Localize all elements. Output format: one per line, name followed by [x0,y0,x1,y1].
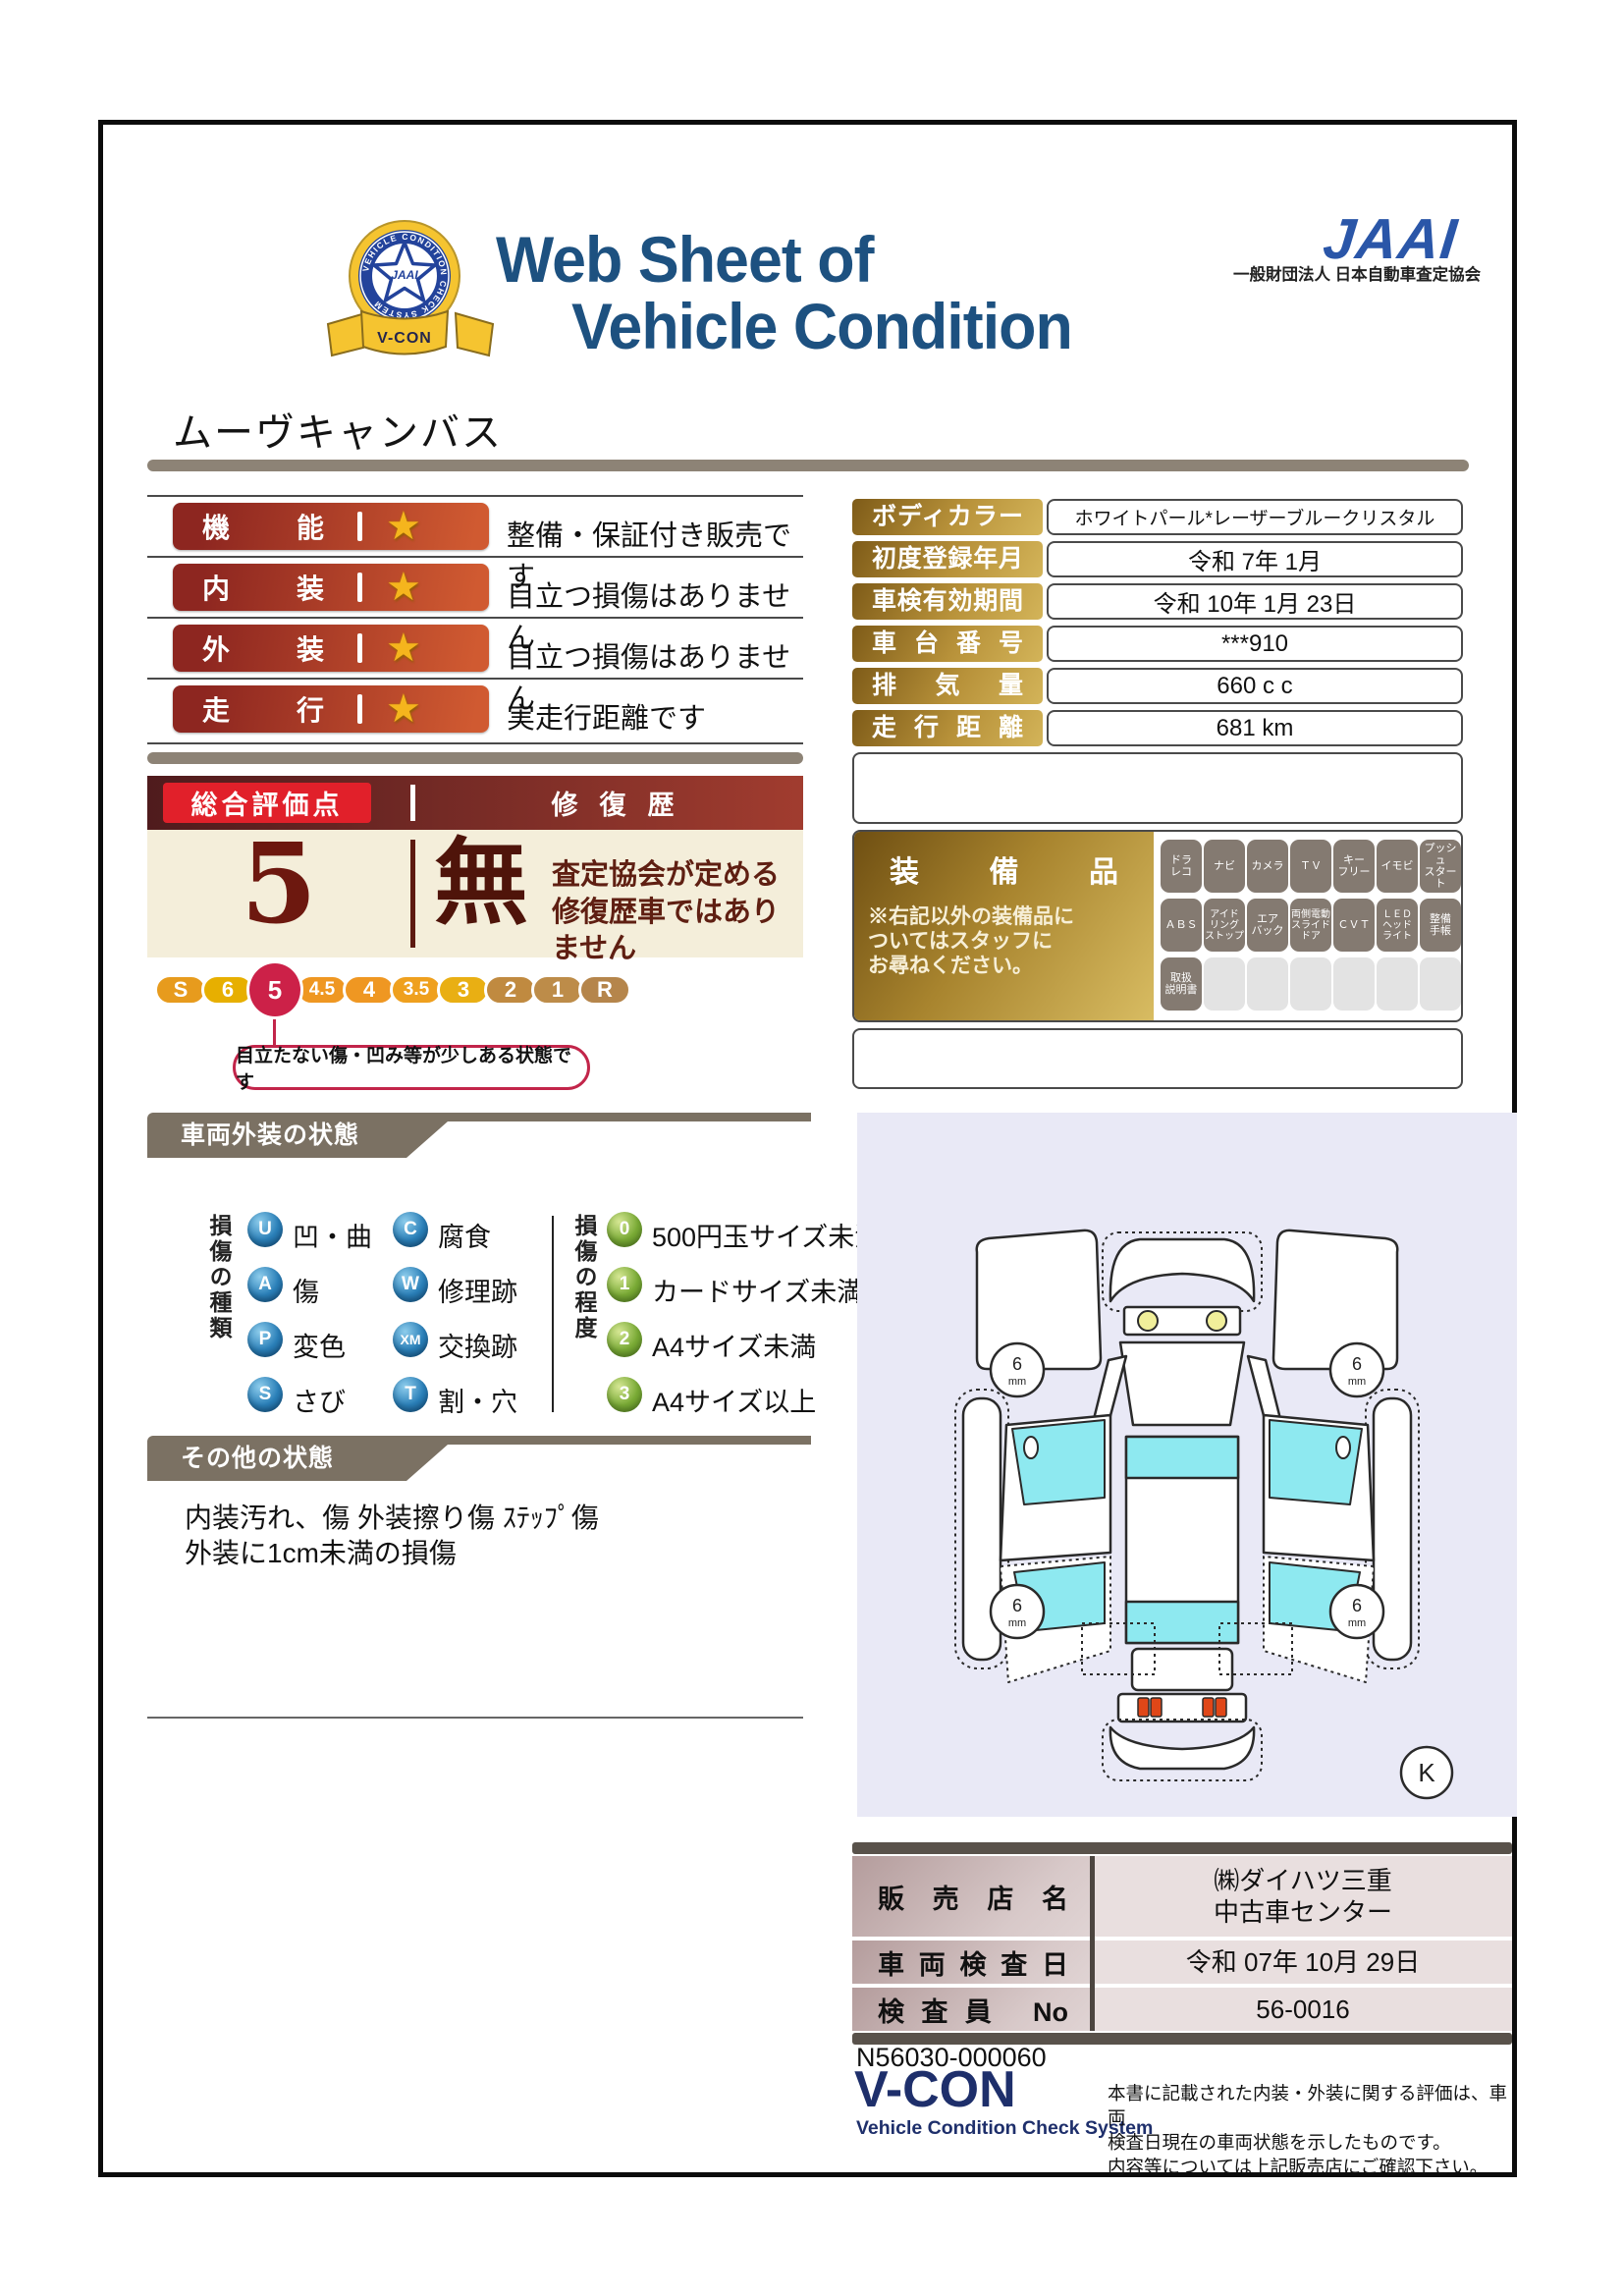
damage-type-header: 損傷の種類 [202,1214,236,1341]
damage-type-label: 腐食 [438,1216,491,1254]
equipment-badge: プッシュ スタート [1420,840,1461,893]
section-title-exterior: 車両外装の状態 [181,1113,359,1158]
rating-label: 内装 [173,568,340,607]
dealer-table-divider [1090,1856,1095,2031]
damage-degree-icon-0: 0 [607,1212,642,1247]
divider-bar-top [147,460,1469,471]
equipment-badge: ＡＢＳ [1161,899,1202,952]
damage-degree-label: 500円玉サイズ未満 [652,1216,881,1254]
equipment-badge: キー フリー [1333,840,1375,893]
other-condition-text: 内装汚れ、傷 外装擦り傷 ｽﾃｯﾌﾟ傷 外装に1cm未満の損傷 [185,1501,599,1572]
dealer-value-inspector-no: 56-0016 [1094,1988,1512,2031]
damage-degree-label: カードサイズ未満 [652,1271,863,1309]
equipment-badge: アイド リング ストップ [1204,899,1245,952]
equipment-badge: 両側電動 スライド ドア [1290,899,1331,952]
info-value-mileage: 681 km [1047,710,1463,746]
grade-scale-1: 1 [531,974,584,1006]
repair-history-title: 修復歴 [422,776,803,830]
dealer-label-text: 検査員 No [878,1991,1068,2029]
equipment-section: 装備品 ※右記以外の装備品に ついてはスタッフに お尋ねください。 ドラ レコ … [852,830,1463,1022]
grade-scale-R: R [578,974,631,1006]
damage-type-icon-XM: XM [393,1322,428,1357]
vcon-logo: V-CON [854,2060,1016,2119]
rating-desc: 実走行距離です [507,695,811,737]
damage-type-label: 傷 [293,1271,319,1309]
equipment-badge: イモビ [1377,840,1418,893]
divider-bar-left [147,752,803,764]
grade-scale-3: 3 [437,974,490,1006]
damage-type-icon-U: U [247,1212,283,1247]
car-diagram-panel: 6 mm 6 mm 6 mm 6 mm K [857,1113,1517,1817]
damage-degree-icon-1: 1 [607,1267,642,1302]
equipment-badge-empty [1290,957,1331,1011]
grade-scale-5-selected: 5 [246,960,303,1019]
rating-divider [357,512,362,541]
other-condition-line2: 外装に1cm未満の損傷 [185,1536,599,1571]
dealer-label-text: 販売店名 [878,1878,1068,1916]
tread-front-right-unit: mm [1348,1376,1366,1388]
emblem-star-label: JAAI [391,268,418,282]
info-value-chassis-no: ***910 [1047,626,1463,662]
vcon-emblem-icon: VEHICLE CONDITION CHECK SYSTEM JAAI V-CO… [322,216,499,371]
equipment-badge: 整備 手帳 [1420,899,1461,952]
other-condition-line1: 内装汚れ、傷 外装擦り傷 ｽﾃｯﾌﾟ傷 [185,1501,599,1536]
info-value-body-color: ホワイトパール*レーザーブルークリスタル [1047,499,1463,535]
overall-score-body: 5 無 査定協会が定める 修復歴車ではありません [147,830,803,957]
section-title-other: その他の状態 [181,1436,334,1481]
equipment-badge: ＬＥＤ ヘッド ライト [1377,899,1418,952]
footer-note-line2: 検査日現在の車両状態を示したものです。 [1108,2131,1516,2156]
equipment-badge-empty [1247,957,1288,1011]
dealer-table-top-bar [852,1842,1512,1854]
info-label-mileage: 走行距離 [852,710,1043,746]
jaai-organization-name: 一般財団法人 日本自動車査定協会 [1233,261,1481,285]
star-icon: ★ [386,504,421,549]
damage-degree-header: 損傷の程度 [568,1214,601,1341]
dealer-label-shop: 販売店名 [852,1856,1094,1937]
grade-callout: 目立たない傷・凹み等が少しある状態です [233,1045,590,1090]
damage-type-icon-W: W [393,1267,428,1302]
tread-rear-right-value: 6 [1352,1596,1362,1615]
equipment-gold-panel: 装備品 ※右記以外の装備品に ついてはスタッフに お尋ねください。 [854,832,1154,1020]
rating-label: 機能 [173,507,340,546]
overall-header-divider [410,785,415,821]
info-empty-box [852,752,1463,824]
car-diagram: 6 mm 6 mm 6 mm 6 mm K [857,1113,1517,1817]
tread-front-right-value: 6 [1352,1354,1362,1374]
damage-type-label: 変色 [293,1326,346,1364]
tread-rear-left-unit: mm [1008,1617,1026,1629]
other-condition-underline [147,1717,803,1719]
rating-separator [147,742,803,744]
tread-front-left-unit: mm [1008,1376,1026,1388]
footer-note-line1: 本書に記載された内装・外装に関する評価は、車両 [1108,2082,1516,2131]
equipment-row2: ＡＢＳ アイド リング ストップ エア バック 両側電動 スライド ドア ＣＶＴ… [1161,899,1461,952]
star-icon: ★ [386,565,421,610]
damage-type-icon-A: A [247,1267,283,1302]
dealer-label-inspector-no: 検査員 No [852,1988,1094,2031]
k-marker-label: K [1418,1758,1435,1787]
info-value-displacement: 660 c c [1047,668,1463,704]
equipment-row1: ドラ レコ ナビ カメラ ＴＶ キー フリー イモビ プッシュ スタート [1161,840,1461,893]
equipment-badge-empty [1204,957,1245,1011]
tread-rear-right-unit: mm [1348,1617,1366,1629]
overall-score-value: 5 [147,820,410,949]
equipment-badge-empty [1420,957,1461,1011]
equipment-badge: ＣＶＴ [1333,899,1375,952]
grade-scale-3-5: 3.5 [390,974,443,1006]
rating-row-mileage: 走行 ★ [173,685,489,733]
rating-row-interior: 内装 ★ [173,564,489,611]
overall-score-title: 総合評価点 [163,783,371,823]
equipment-badge: ＴＶ [1290,840,1331,893]
info-label-displacement: 排気量 [852,668,1043,704]
damage-degree-icon-3: 3 [607,1377,642,1412]
grade-scale-S: S [154,974,207,1006]
equipment-badge: カメラ [1247,840,1288,893]
damage-degree-icon-2: 2 [607,1322,642,1357]
rating-label: 走行 [173,689,340,729]
overall-body-divider [410,840,415,948]
grade-scale-2: 2 [484,974,537,1006]
info-label-chassis-no: 車台番号 [852,626,1043,662]
repair-history-flag: 無 [434,836,528,930]
damage-type-icon-T: T [393,1377,428,1412]
damage-type-label: 修理跡 [438,1271,517,1309]
equipment-badge-empty [1333,957,1375,1011]
grade-scale-4-5: 4.5 [296,974,349,1006]
damage-type-label: さび [293,1381,346,1419]
repair-desc-line2: 修復歴車ではありません [552,895,803,968]
vehicle-name: ムーヴキャンバス [173,401,503,458]
rating-divider [357,694,362,724]
info-value-first-registration: 令和 7年 1月 [1047,541,1463,577]
equipment-badge: エア バック [1247,899,1288,952]
star-icon: ★ [386,686,421,732]
star-icon: ★ [386,626,421,671]
rating-row-function: 機能 ★ [173,503,489,550]
info-label-body-color: ボディカラー [852,499,1043,535]
equipment-badge-empty [1377,957,1418,1011]
equipment-title: 装備品 [890,847,1118,891]
damage-degree-label: A4サイズ未満 [652,1326,816,1364]
tread-rear-left-value: 6 [1012,1596,1022,1615]
rating-separator [147,495,803,497]
rating-label: 外装 [173,629,340,668]
damage-type-label: 凹・曲 [293,1216,372,1254]
damage-type-icon-C: C [393,1212,428,1247]
footer-note-line3: 内容等については上記販売店にご確認下さい。 [1108,2156,1516,2180]
damage-type-icon-P: P [247,1322,283,1357]
equipment-badge: ナビ [1204,840,1245,893]
info-label-inspection-valid: 車検有効期間 [852,583,1043,620]
sheet-title-line1: Web Sheet of [496,222,874,297]
equipment-badge: 取扱 説明書 [1161,957,1202,1011]
dealer-label-inspection-date: 車両検査日 [852,1941,1094,1984]
footer-note: 本書に記載された内装・外装に関する評価は、車両 検査日現在の車両状態を示したもの… [1108,2082,1516,2180]
repair-desc-line1: 査定協会が定める [552,857,803,895]
rating-divider [357,633,362,663]
info-label-first-registration: 初度登録年月 [852,541,1043,577]
vehicle-condition-sheet: { "header": { "badge": { "ring_text": "V… [0,0,1623,2296]
legend-divider [552,1216,554,1412]
damage-type-icon-S: S [247,1377,283,1412]
equipment-row3: 取扱 説明書 [1161,957,1461,1011]
dealer-value-shop: ㈱ダイハツ三重 中古車センター [1094,1856,1512,1937]
equipment-note: ※右記以外の装備品に ついてはスタッフに お尋ねください。 [868,904,1154,979]
repair-history-desc: 査定協会が定める 修復歴車ではありません [552,857,803,968]
tread-front-left-value: 6 [1012,1354,1022,1374]
dealer-value-inspection-date: 令和 07年 10月 29日 [1094,1941,1512,1984]
rating-divider [357,573,362,602]
grade-scale-4: 4 [343,974,396,1006]
equipment-empty-box [852,1028,1463,1089]
rating-row-exterior: 外装 ★ [173,625,489,672]
damage-type-label: 交換跡 [438,1326,517,1364]
emblem-ribbon-label: V-CON [377,330,432,347]
sheet-title-line2: Vehicle Condition [571,289,1072,363]
damage-type-label: 割・穴 [438,1381,517,1419]
info-value-inspection-valid: 令和 10年 1月 23日 [1047,583,1463,620]
damage-degree-label: A4サイズ以上 [652,1381,816,1419]
dealer-label-text: 車両検査日 [878,1943,1068,1982]
equipment-badge: ドラ レコ [1161,840,1202,893]
